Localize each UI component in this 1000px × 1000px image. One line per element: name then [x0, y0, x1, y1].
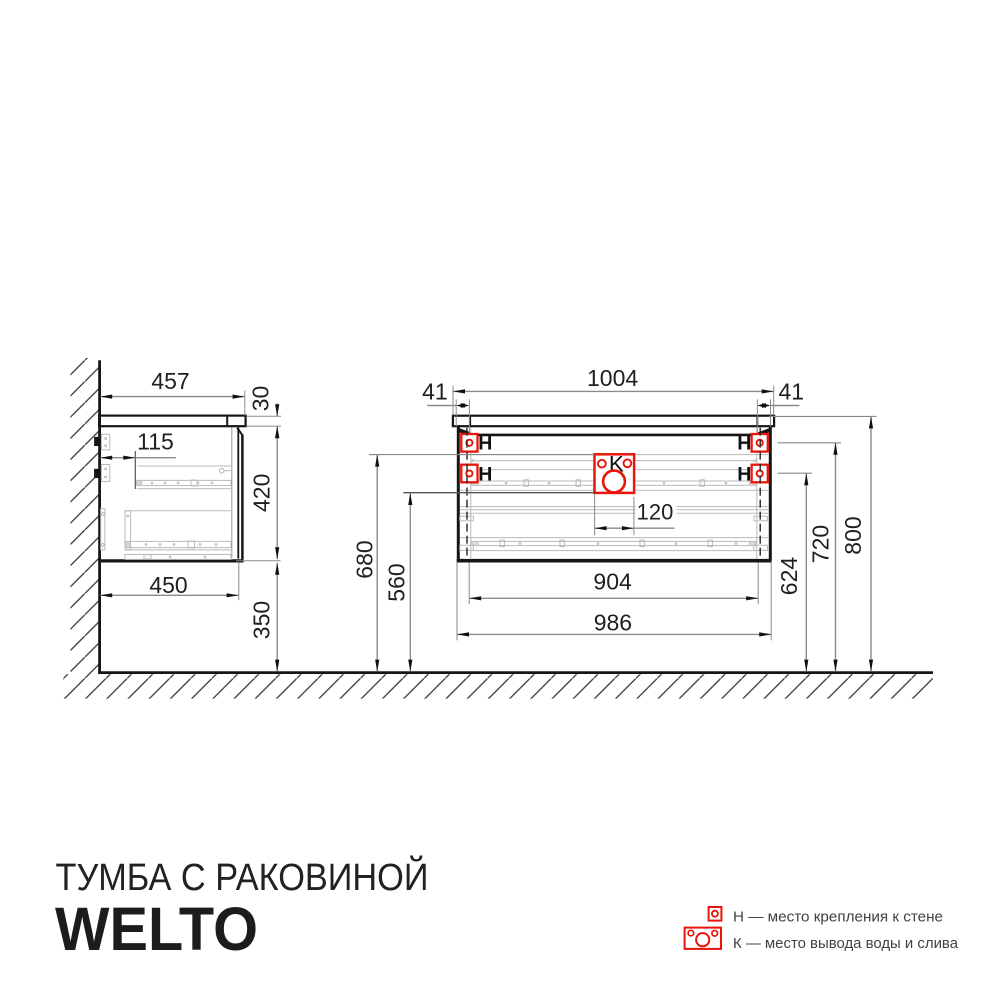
- svg-text:457: 457: [151, 368, 189, 394]
- svg-text:41: 41: [779, 378, 805, 404]
- svg-text:ТУМБА С РАКОВИНОЙ: ТУМБА С РАКОВИНОЙ: [56, 854, 429, 899]
- svg-text:30: 30: [247, 386, 273, 412]
- svg-text:986: 986: [594, 609, 632, 635]
- svg-text:Н — место крепления к стене: Н — место крепления к стене: [733, 910, 943, 926]
- svg-text:К — место вывода воды и слива: К — место вывода воды и слива: [733, 936, 958, 952]
- svg-text:560: 560: [384, 563, 410, 601]
- svg-text:H: H: [478, 433, 492, 455]
- svg-text:115: 115: [137, 428, 174, 454]
- svg-text:41: 41: [422, 378, 448, 404]
- svg-text:904: 904: [593, 569, 632, 595]
- svg-text:624: 624: [776, 557, 802, 596]
- svg-text:120: 120: [637, 500, 674, 525]
- svg-text:720: 720: [808, 525, 834, 563]
- svg-text:350: 350: [248, 601, 274, 639]
- svg-text:H: H: [737, 433, 751, 455]
- svg-text:H: H: [478, 463, 492, 485]
- svg-text:800: 800: [840, 516, 866, 554]
- svg-text:420: 420: [249, 474, 275, 512]
- svg-text:680: 680: [352, 540, 378, 578]
- svg-text:450: 450: [149, 572, 187, 598]
- svg-text:1004: 1004: [587, 365, 638, 391]
- svg-text:H: H: [737, 463, 751, 485]
- svg-text:WELTO: WELTO: [55, 895, 258, 963]
